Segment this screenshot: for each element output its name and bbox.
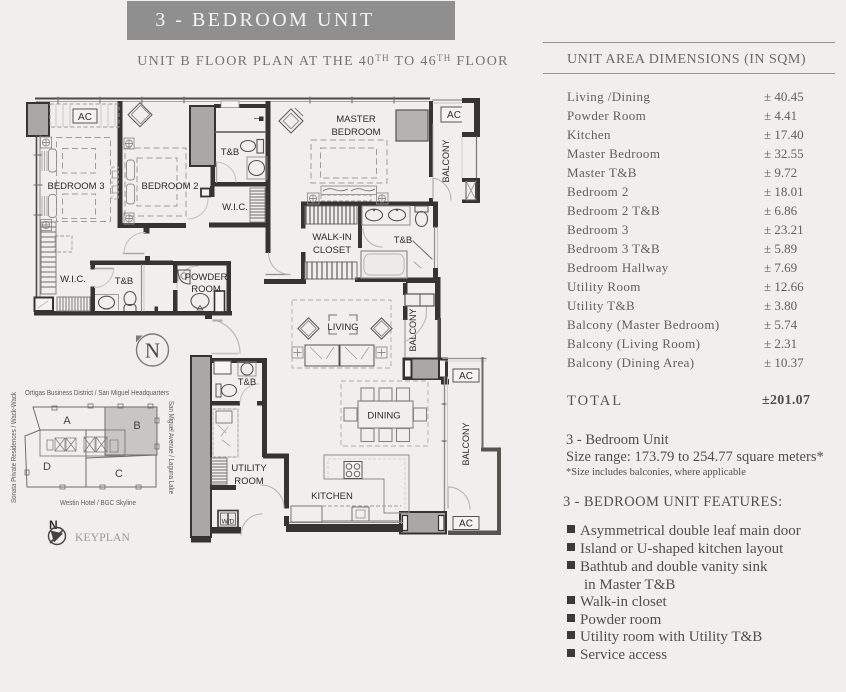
svg-text:B: B: [133, 420, 140, 432]
svg-text:BALCONY: BALCONY: [408, 308, 418, 351]
svg-text:N: N: [145, 339, 160, 363]
svg-text:AC: AC: [447, 110, 461, 121]
svg-text:KITCHEN: KITCHEN: [311, 491, 353, 502]
svg-text:LIVING: LIVING: [327, 322, 358, 333]
svg-text:San Miguel Avenue / Laguna Lak: San Miguel Avenue / Laguna Lake: [167, 401, 174, 494]
svg-text:BALCONY: BALCONY: [441, 139, 451, 182]
svg-text:BEDROOM 3: BEDROOM 3: [47, 181, 104, 192]
svg-text:AC: AC: [459, 519, 473, 530]
svg-text:ROOM: ROOM: [234, 476, 264, 487]
svg-text:T&B: T&B: [115, 276, 133, 287]
svg-text:BEDROOM 2: BEDROOM 2: [141, 181, 198, 192]
svg-text:W.I.C.: W.I.C.: [60, 274, 86, 285]
svg-text:BEDROOM: BEDROOM: [331, 127, 380, 138]
svg-text:Ortigas Business District / Sa: Ortigas Business District / San Miguel H…: [25, 390, 169, 397]
svg-text:AC: AC: [459, 371, 473, 382]
svg-text:CLOSET: CLOSET: [313, 245, 351, 256]
svg-text:A: A: [63, 415, 71, 427]
svg-text:Sonata Private Residences / Wa: Sonata Private Residences / Wack-Wack: [11, 392, 18, 503]
svg-text:UTILITY: UTILITY: [231, 463, 267, 474]
svg-text:WALK-IN: WALK-IN: [312, 232, 351, 243]
svg-text:BALCONY: BALCONY: [461, 422, 471, 465]
svg-text:T&B: T&B: [221, 147, 239, 158]
svg-text:T&B: T&B: [238, 377, 256, 388]
svg-text:C: C: [115, 468, 123, 480]
svg-text:AC: AC: [78, 112, 92, 123]
svg-text:KEYPLAN: KEYPLAN: [75, 532, 131, 544]
svg-text:W.I.C.: W.I.C.: [222, 202, 248, 213]
svg-text:MASTER: MASTER: [336, 114, 376, 125]
svg-text:W/D: W/D: [222, 519, 235, 526]
svg-text:ROOM: ROOM: [191, 284, 221, 295]
svg-text:T&B: T&B: [394, 235, 412, 246]
svg-text:D: D: [43, 461, 51, 473]
svg-text:POWDER: POWDER: [185, 272, 228, 283]
svg-text:DINING: DINING: [367, 411, 400, 422]
svg-text:Westin Hotel / BGC Skyline: Westin Hotel / BGC Skyline: [60, 500, 136, 507]
